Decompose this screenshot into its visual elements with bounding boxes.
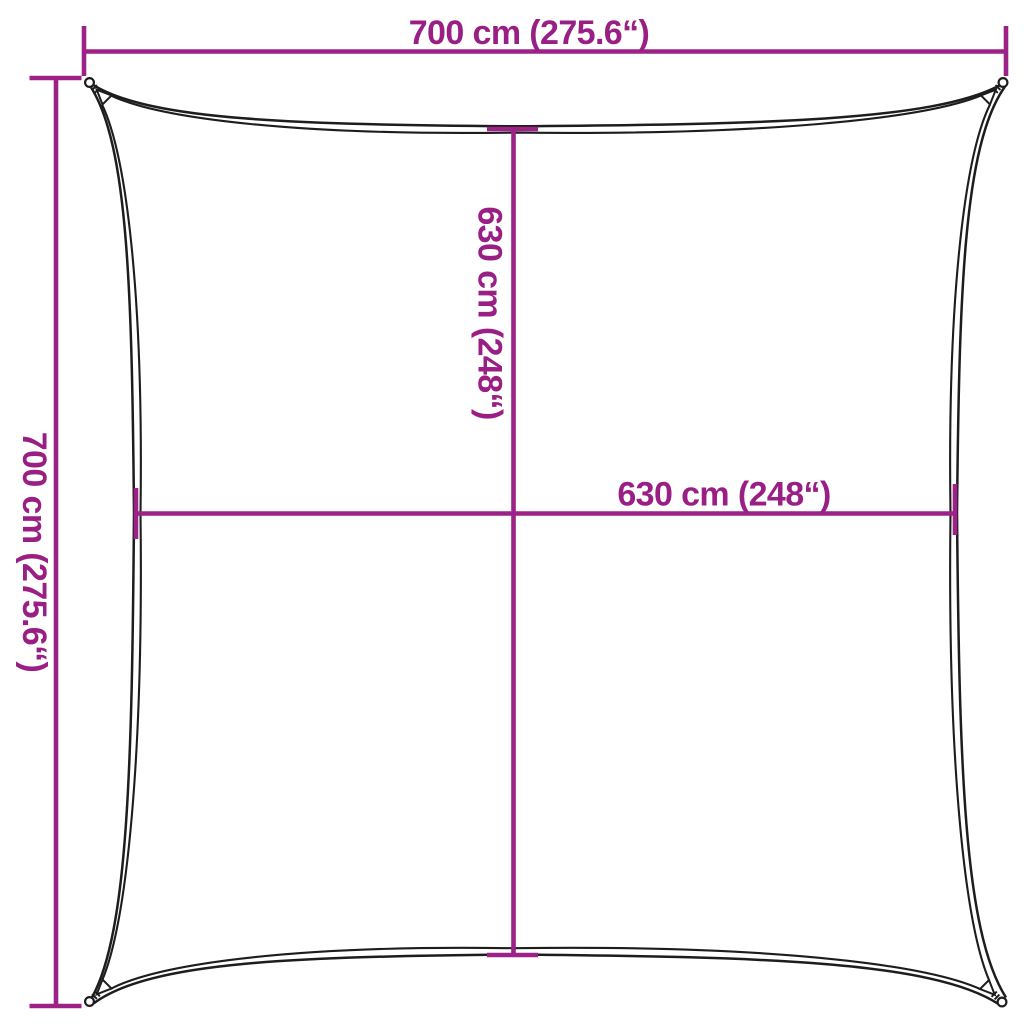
svg-text:630 cm (248“): 630 cm (248“) [617, 476, 830, 514]
svg-text:700 cm (275.6“): 700 cm (275.6“) [15, 432, 53, 673]
svg-text:630 cm (248“): 630 cm (248“) [471, 206, 509, 419]
svg-text:700 cm (275.6“): 700 cm (275.6“) [409, 14, 650, 52]
